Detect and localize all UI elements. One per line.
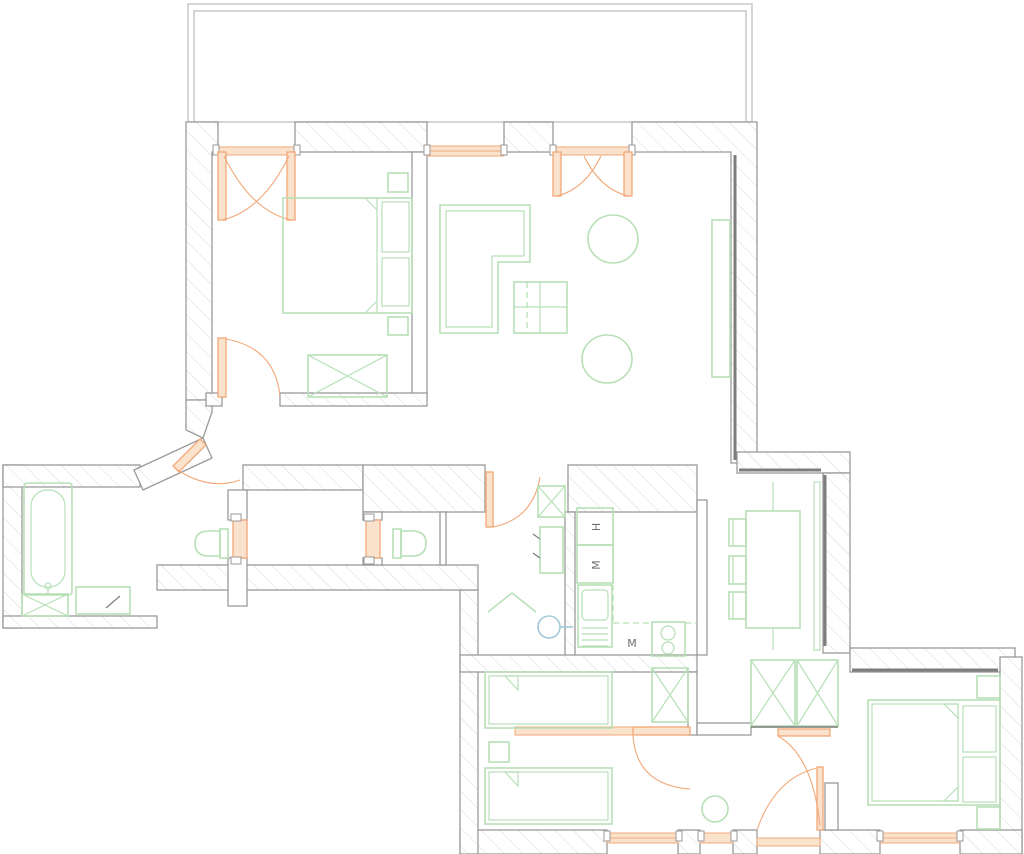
slab-edge-lines [735, 155, 998, 670]
jamb [731, 831, 737, 841]
wardrobe-cross [751, 660, 795, 726]
floor-plan-page: H M M [0, 0, 1024, 854]
interior-wall [688, 672, 697, 735]
double-balcony-door-icon [553, 152, 632, 196]
swing-door-icon [486, 472, 540, 527]
appliance-label: M [590, 560, 603, 570]
exterior-wall [460, 830, 607, 854]
blanket-fold [944, 704, 958, 801]
exterior-wall [3, 616, 157, 628]
jamb [604, 831, 610, 841]
exterior-wall [823, 473, 850, 653]
exterior-wall [632, 122, 757, 463]
jamb [676, 831, 682, 841]
swing-door-icon [218, 338, 280, 397]
pillow-icon [382, 258, 409, 306]
cupboard-hinge-ticks [533, 534, 540, 558]
toilet-tank [220, 529, 228, 558]
exterior-wall [960, 830, 1022, 854]
bedroom-2-furniture [868, 676, 1000, 829]
pillow-icon [963, 757, 996, 802]
balcony-outer-line [188, 4, 752, 122]
nightstand-icon [388, 317, 408, 335]
burner-icon [661, 626, 675, 640]
bathroom-fixtures [22, 483, 228, 616]
balcony-inner-line [194, 11, 746, 122]
single-bed-icon [485, 768, 612, 824]
bedside-table-icon [489, 742, 509, 762]
wardrobe-cross [797, 660, 838, 726]
living-room-furniture [440, 205, 730, 383]
double-bed-icon [283, 198, 412, 313]
interior-wall [565, 512, 575, 662]
interior-wall [568, 465, 697, 512]
fridge-label: H [590, 523, 603, 531]
wardrobe-cross [538, 486, 565, 517]
coffee-table-lines [514, 282, 567, 333]
interior-wall [280, 393, 427, 406]
bed-mattress [489, 772, 608, 820]
door-threshold [757, 838, 820, 846]
window-icon [700, 833, 733, 843]
pillow-fold [505, 676, 518, 690]
single-bed-icon [485, 672, 612, 728]
swing-door-icon [515, 727, 690, 789]
floor-plan-drawing: H M M [0, 0, 1024, 854]
kitchen-sink-cabinet [578, 585, 612, 647]
burner-icon [662, 642, 674, 654]
wardrobe-cross [308, 355, 387, 397]
balcony-outline [188, 4, 752, 122]
jamb [877, 831, 883, 841]
tv-stand-icon [712, 220, 730, 377]
nightstand-icon [388, 173, 408, 192]
interior-wall [157, 565, 478, 590]
pocket-door-icon [364, 514, 380, 564]
pillow-fold [505, 772, 518, 786]
storage-nook [488, 486, 573, 638]
interior-wall [460, 655, 697, 672]
counter-edge-dash [613, 508, 697, 623]
swing-door-icon [757, 767, 823, 830]
chair-icon [729, 556, 746, 584]
interior-wall [697, 500, 707, 655]
kitchen-sink-icon [582, 590, 608, 620]
exterior-wall [460, 590, 478, 854]
sofa-inner-line [446, 211, 524, 327]
jamb [501, 145, 507, 155]
interior-wall [243, 465, 363, 490]
dining-area [729, 482, 820, 650]
bifold-door-icon [488, 593, 536, 612]
kitchen: H M M [577, 508, 697, 656]
balcony-door-threshold [218, 147, 295, 155]
exterior-wall [186, 122, 218, 400]
wc-fixtures [393, 529, 426, 558]
toilet-icon [195, 531, 220, 556]
dining-table-icon [746, 511, 800, 628]
exterior-walls [3, 122, 1022, 854]
vanity-counter-icon [76, 587, 130, 614]
exterior-wall [295, 122, 427, 152]
interior-wall [440, 512, 446, 565]
vanity-tap [106, 596, 120, 608]
washing-machine-cross [22, 594, 68, 616]
nightstand-icon [977, 807, 1000, 829]
jamb [424, 145, 430, 155]
balcony-door-threshold [553, 147, 632, 155]
pillow-icon [963, 706, 996, 752]
interior-wall [825, 783, 838, 830]
bed-mattress [489, 676, 608, 724]
interior-wall [228, 558, 247, 606]
chair-icon [729, 519, 746, 546]
round-pouf-icon [588, 215, 638, 263]
console-icon [814, 482, 820, 650]
jamb [957, 831, 963, 841]
wardrobe-cross [652, 668, 688, 722]
toilet-icon [401, 531, 426, 556]
pocket-door-icon [231, 514, 247, 564]
blanket-fold [365, 198, 377, 313]
interior-wall [412, 152, 427, 397]
round-pouf-icon [702, 796, 728, 822]
bathtub-drain [45, 583, 51, 589]
bedroom-1-furniture [283, 173, 412, 397]
kids-room-furniture [485, 668, 688, 824]
exterior-wall [1000, 657, 1022, 854]
dish-rack-lines [582, 628, 608, 646]
washbasin-icon [538, 616, 560, 638]
jamb [698, 831, 704, 841]
nightstand-icon [977, 676, 1000, 698]
exterior-wall [3, 465, 22, 628]
exterior-wall [504, 122, 553, 152]
toilet-tank [393, 529, 401, 558]
exterior-wall [820, 830, 880, 854]
cupboard-icon [540, 527, 563, 573]
corner-sofa-icon [440, 205, 530, 333]
interior-wall [697, 723, 751, 735]
stove-icon [652, 622, 685, 656]
bathtub-inner [31, 490, 65, 587]
chair-icon [729, 592, 746, 619]
bed-mattress [872, 704, 958, 801]
appliance-label: M [627, 637, 637, 650]
interior-wall [363, 465, 485, 512]
round-pouf-icon [582, 335, 632, 383]
exterior-wall [850, 648, 1015, 672]
pillow-icon [382, 202, 409, 252]
